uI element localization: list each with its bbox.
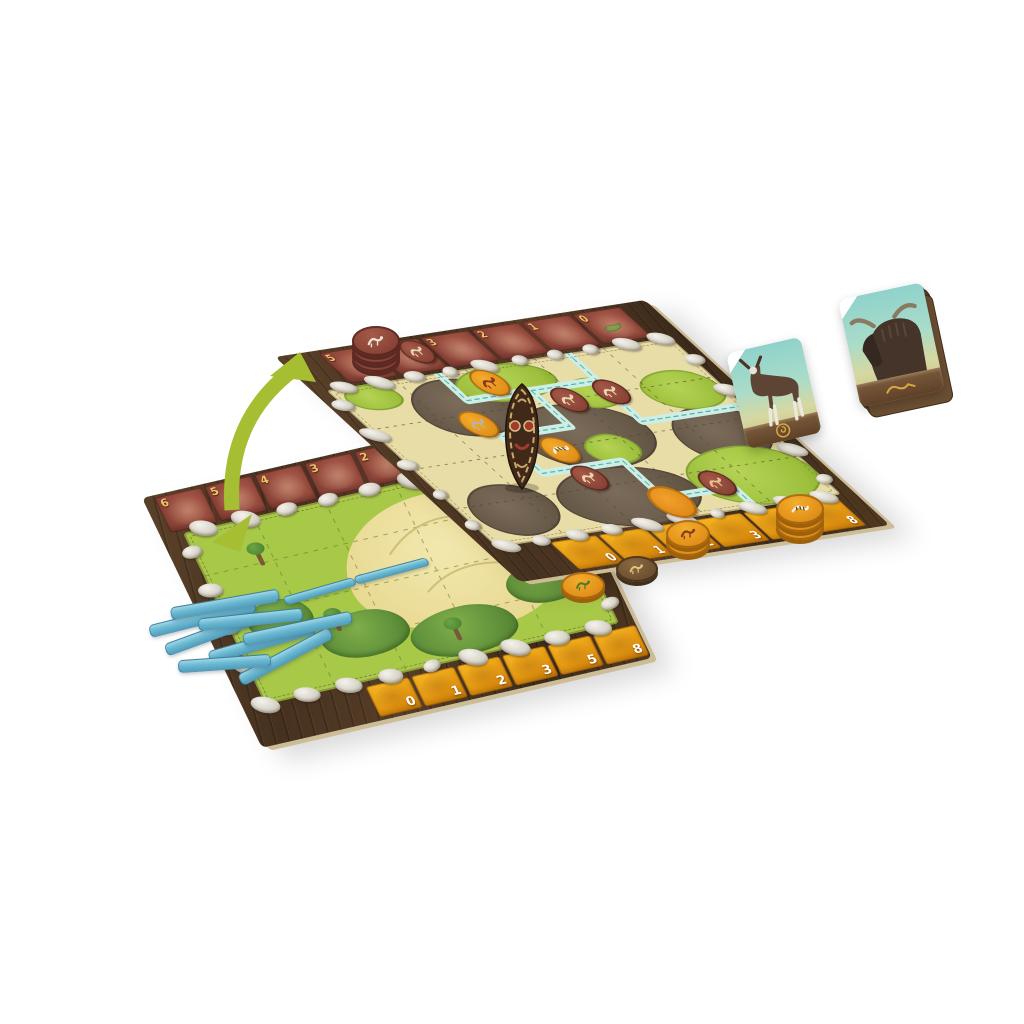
score-track-number: 1 (449, 683, 464, 698)
animal-glyph (622, 560, 651, 578)
red-track-number: 6 (158, 496, 171, 509)
animal-glyph (673, 524, 704, 544)
red-track-number: 2 (358, 450, 371, 463)
score-track-number: 2 (494, 673, 509, 688)
token-croc-flat (561, 572, 605, 605)
stack-maroon-layer (352, 326, 400, 356)
score-track-number: 8 (843, 514, 863, 526)
token-croc-flat-layer (561, 572, 605, 599)
stack-zebra-layer (776, 494, 824, 524)
stack-maroon (352, 326, 400, 378)
stack-zebra (776, 494, 824, 546)
animal-card-stack (838, 282, 945, 407)
zebra-glyph (783, 499, 817, 520)
animal-glyph (568, 576, 599, 595)
token-lion-flat-layer (616, 556, 658, 582)
score-track-number: 0 (403, 694, 418, 709)
tribal-mask-standee-icon (495, 382, 549, 494)
score-track-number: 3 (540, 662, 555, 677)
product-photo-stage: 654321 012358 543210 (0, 0, 1024, 1024)
flip-arrow-icon (198, 352, 328, 562)
crocodile-icon (597, 321, 629, 334)
animal-glyph (359, 331, 393, 352)
stack-tiger (666, 520, 710, 562)
score-track-number: 5 (585, 652, 600, 667)
token-lion-flat (616, 556, 658, 588)
score-track-number: 8 (630, 642, 645, 657)
stack-tiger-layer (666, 520, 710, 548)
